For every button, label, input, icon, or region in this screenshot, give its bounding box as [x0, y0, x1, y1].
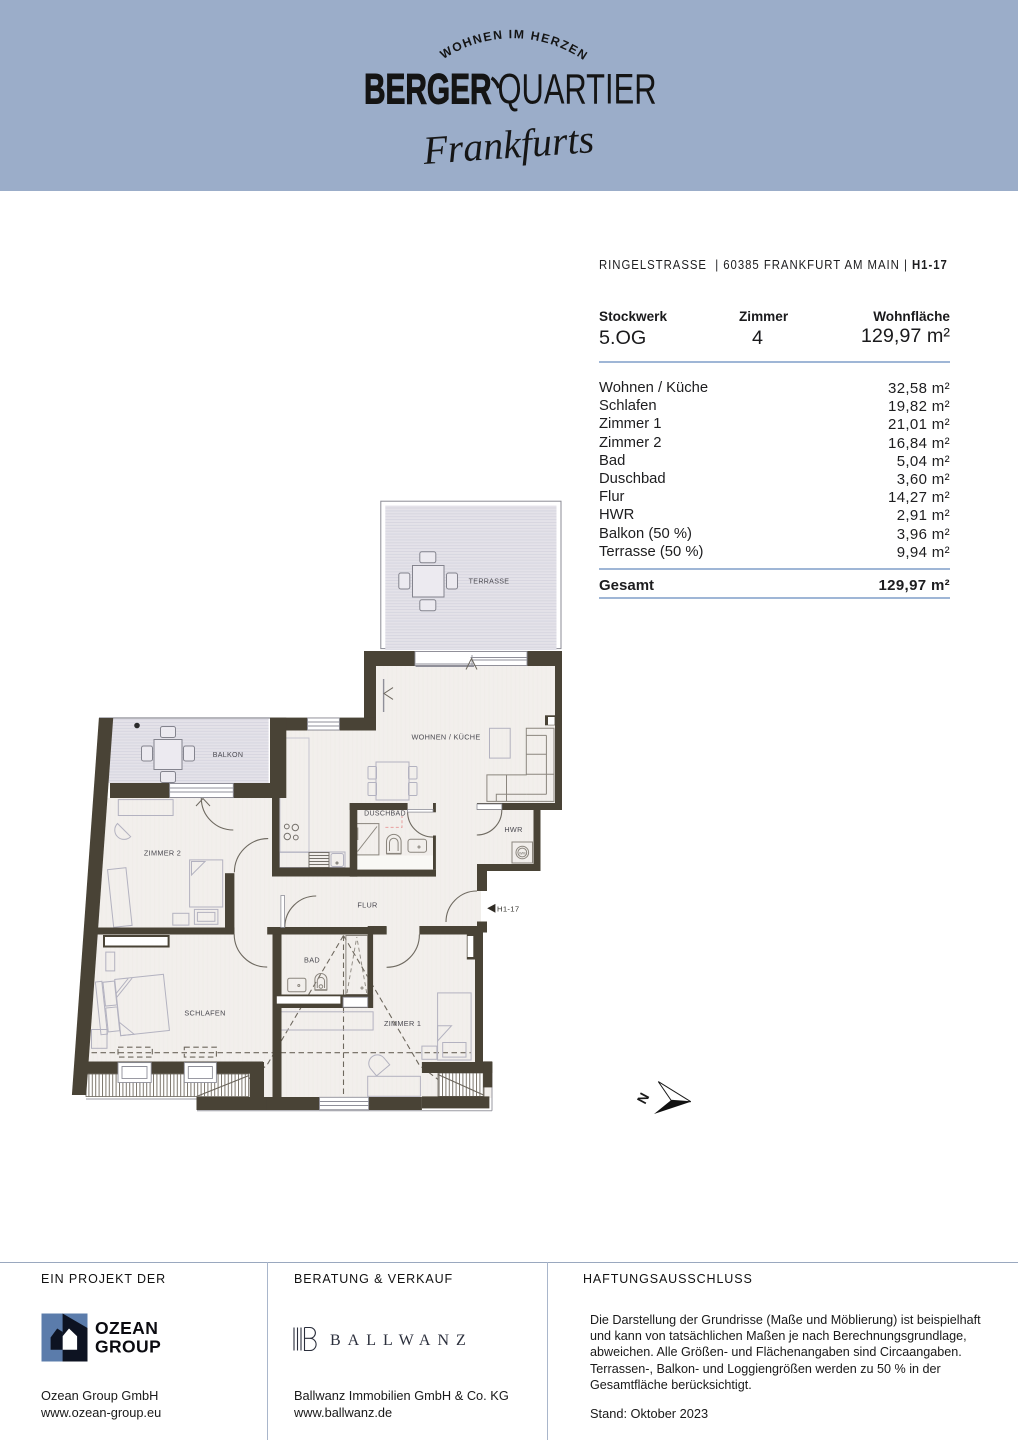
svg-text:ZIMMER 2: ZIMMER 2	[144, 849, 181, 858]
svg-text:H1-17: H1-17	[497, 904, 519, 913]
svg-text:BALLWANZ: BALLWANZ	[330, 1332, 473, 1349]
svg-text:N: N	[634, 1090, 653, 1106]
svg-text:GROUP: GROUP	[95, 1337, 161, 1357]
svg-text:FLUR: FLUR	[357, 901, 377, 910]
svg-text:HWR: HWR	[504, 825, 522, 834]
svg-text:BALKON: BALKON	[213, 751, 244, 759]
svg-text:WM: WM	[519, 851, 525, 855]
svg-text:WOHNEN / KÜCHE: WOHNEN / KÜCHE	[411, 733, 480, 742]
svg-text:DUSCHBAD: DUSCHBAD	[364, 811, 406, 818]
svg-text:OZEAN: OZEAN	[95, 1318, 158, 1338]
svg-text:BAD: BAD	[304, 956, 320, 965]
svg-text:ZIMMER 1: ZIMMER 1	[384, 1019, 421, 1028]
svg-text:SCHLAFEN: SCHLAFEN	[184, 1009, 225, 1018]
svg-text:TERRASSE: TERRASSE	[469, 578, 510, 586]
